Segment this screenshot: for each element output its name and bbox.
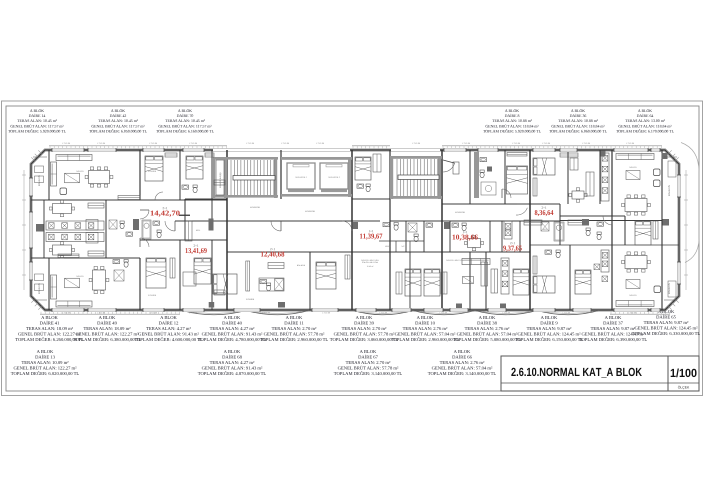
svg-text:TERAS ALAN: 9.87 m²: TERAS ALAN: 9.87 m² [527, 326, 572, 331]
svg-text:HOL: HOL [543, 228, 548, 231]
svg-text:A BLOK: A BLOK [479, 315, 496, 320]
svg-text:A BLOK: A BLOK [356, 315, 373, 320]
svg-text:TERAS ALAN: 10.09 m²: TERAS ALAN: 10.09 m² [21, 360, 69, 365]
svg-text:TERAS ALAN: 4.27 m²: TERAS ALAN: 4.27 m² [210, 326, 255, 331]
svg-text:TERAS ALAN: 18.09 m²: TERAS ALAN: 18.09 m² [83, 326, 131, 331]
svg-text:BALKON: BALKON [668, 185, 671, 196]
svg-text:1.73/2.08: 1.73/2.08 [542, 142, 550, 145]
svg-text:1.73/2.08: 1.73/2.08 [412, 142, 420, 145]
svg-text:YANGIN KAÇIŞ: YANGIN KAÇIŞ [219, 172, 222, 188]
svg-text:A BLOK: A BLOK [505, 109, 519, 113]
svg-text:GENEL BRÜT ALAN: 118.84 m²: GENEL BRÜT ALAN: 118.84 m² [618, 123, 672, 128]
svg-text:1.73/2.08: 1.73/2.08 [97, 142, 105, 145]
svg-text:KİLER: KİLER [385, 245, 391, 248]
svg-text:TERAS ALAN: 9.87 m²: TERAS ALAN: 9.87 m² [644, 320, 689, 325]
svg-text:TOPLAM DEĞER: 2.960.000,00 TL: TOPLAM DEĞER: 2.960.000,00 TL [260, 337, 329, 342]
svg-text:DAİRE 67: DAİRE 67 [358, 355, 378, 360]
svg-text:GENEL BRÜT ALAN: 117.57 m²: GENEL BRÜT ALAN: 117.57 m² [91, 123, 145, 128]
svg-text:DAİRE 70: DAİRE 70 [177, 113, 194, 118]
svg-text:1.73/2.08: 1.73/2.08 [62, 312, 70, 315]
svg-text:1.73/2.08: 1.73/2.08 [262, 312, 270, 315]
svg-text:GENEL BRÜT ALAN: 57.78 m²: GENEL BRÜT ALAN: 57.78 m² [338, 366, 399, 371]
svg-text:A BLOK: A BLOK [160, 315, 177, 320]
svg-text:ÖLÇEK: ÖLÇEK [678, 386, 690, 390]
svg-text:TOPLAM DEĞER: 3.140.000,00 TL: TOPLAM DEĞER: 3.140.000,00 TL [428, 371, 497, 376]
svg-text:TOPLAM DEĞER: 4.600.000,00 TL: TOPLAM DEĞER: 4.600.000,00 TL [134, 337, 203, 342]
svg-text:DAİRE 37: DAİRE 37 [603, 321, 623, 326]
svg-text:1.73/2.08: 1.73/2.08 [626, 142, 634, 145]
svg-text:Y.ODASI: Y.ODASI [148, 170, 157, 173]
svg-text:1.73/2.08: 1.73/2.08 [246, 142, 254, 145]
svg-text:TERAS ALAN: 2.70 m²: TERAS ALAN: 2.70 m² [346, 360, 391, 365]
svg-text:ASANSÖR 1: ASANSÖR 1 [295, 176, 307, 179]
svg-text:1.73/2.08: 1.73/2.08 [628, 312, 636, 315]
svg-text:TOPLAM DEĞER: 5.080.000,00 TL: TOPLAM DEĞER: 5.080.000,00 TL [453, 337, 522, 342]
svg-text:1.73/2.08: 1.73/2.08 [149, 142, 157, 145]
svg-text:A BLOK: A BLOK [37, 349, 54, 354]
svg-text:TERAS ALAN: 2.76 m²: TERAS ALAN: 2.76 m² [403, 326, 448, 331]
svg-text:DAİRE 64: DAİRE 64 [637, 113, 654, 118]
svg-text:TOPLAM DEĞER: 6.150.000,00 TL: TOPLAM DEĞER: 6.150.000,00 TL [515, 337, 584, 342]
svg-text:GENEL BRÜT ALAN: 122.27 m²: GENEL BRÜT ALAN: 122.27 m² [18, 332, 82, 337]
svg-text:Y.ODASI: Y.ODASI [148, 294, 157, 297]
svg-text:GENEL BRÜT ALAN: 124.45 m²: GENEL BRÜT ALAN: 124.45 m² [634, 326, 698, 331]
svg-text:DAİRE 40: DAİRE 40 [222, 321, 242, 326]
svg-text:BALKON: BALKON [297, 264, 306, 267]
svg-text:1.73/2.08: 1.73/2.08 [62, 142, 70, 145]
svg-text:GENEL BRÜT ALAN: 91.43 m²: GENEL BRÜT ALAN: 91.43 m² [202, 366, 263, 371]
svg-text:DAİRE 39: DAİRE 39 [354, 321, 374, 326]
svg-text:A BLOK: A BLOK [30, 109, 44, 113]
svg-text:TOPLAM DEĞER: 6.060.000,00 TL: TOPLAM DEĞER: 6.060.000,00 TL [549, 128, 608, 133]
svg-text:1.73/2.08: 1.73/2.08 [189, 142, 197, 145]
svg-text:HOL: HOL [196, 229, 201, 232]
svg-text:DAİRE 10: DAİRE 10 [415, 321, 435, 326]
svg-text:1.73/2.08: 1.73/2.08 [149, 312, 157, 315]
svg-text:1.73/2.08: 1.73/2.08 [439, 312, 447, 315]
svg-text:SALON: SALON [76, 275, 84, 278]
svg-text:TOPLAM DEĞER: 6.050.000,00 TL: TOPLAM DEĞER: 6.050.000,00 TL [89, 128, 148, 133]
svg-text:DAİRE 8: DAİRE 8 [505, 113, 520, 118]
svg-text:TOPLAM DEĞER: 5.920.000,00 TL: TOPLAM DEĞER: 5.920.000,00 TL [483, 128, 542, 133]
svg-text:A BLOK: A BLOK [360, 349, 377, 354]
svg-text:TOPLAM DEĞER: 4.870.000,00 TL: TOPLAM DEĞER: 4.870.000,00 TL [198, 371, 267, 376]
svg-text:TERAS ALAN: 10.45 m²: TERAS ALAN: 10.45 m² [17, 119, 58, 123]
svg-text:1.73/2.08: 1.73/2.08 [562, 312, 570, 315]
svg-text:A BLOK: A BLOK [224, 315, 241, 320]
svg-text:1.73/2.08: 1.73/2.08 [316, 142, 324, 145]
svg-text:TOPLAM DEĞER: 6.020.000,00 TL: TOPLAM DEĞER: 6.020.000,00 TL [11, 371, 80, 376]
svg-text:SALON: SALON [629, 166, 637, 169]
svg-text:TERAS ALAN: 2.70 m²: TERAS ALAN: 2.70 m² [272, 326, 317, 331]
svg-text:BALKON: BALKON [38, 175, 41, 186]
svg-text:DAİRE 49: DAİRE 49 [97, 321, 117, 326]
svg-text:DAİRE 66: DAİRE 66 [452, 355, 472, 360]
svg-text:TERAS ALAN: 9.87 m²: TERAS ALAN: 9.87 m² [591, 326, 636, 331]
svg-text:TERAS ALAN: 2.76 m²: TERAS ALAN: 2.76 m² [440, 360, 485, 365]
svg-text:TERAS ALAN: 10.88 m²: TERAS ALAN: 10.88 m² [492, 119, 533, 123]
svg-text:KORİDOR: KORİDOR [305, 210, 316, 213]
svg-text:DAİRE 36: DAİRE 36 [570, 113, 587, 118]
svg-text:SALON: SALON [76, 170, 84, 173]
svg-text:GENEL BRÜT ALAN: 118.84 m²: GENEL BRÜT ALAN: 118.84 m² [551, 123, 605, 128]
svg-text:SALON: SALON [629, 294, 637, 297]
svg-text:A BLOK: A BLOK [224, 349, 241, 354]
svg-text:BALKON: BALKON [668, 283, 671, 294]
svg-text:1.73/2.08: 1.73/2.08 [512, 142, 520, 145]
svg-text:1.73/2.08: 1.73/2.08 [502, 312, 510, 315]
svg-text:DAİRE 11: DAİRE 11 [284, 321, 304, 326]
svg-text:GENEL BRÜT ALAN: 57.04 m²: GENEL BRÜT ALAN: 57.04 m² [432, 366, 493, 371]
svg-text:1.73/2.08: 1.73/2.08 [462, 142, 470, 145]
svg-text:GENEL BRÜT ALAN: 91.43 m²: GENEL BRÜT ALAN: 91.43 m² [202, 332, 263, 337]
svg-text:SALON+MUTFAK: SALON+MUTFAK [446, 259, 464, 262]
svg-text:TOPLAM DEĞER: 3.140.000,00 TL: TOPLAM DEĞER: 3.140.000,00 TL [334, 371, 403, 376]
svg-text:KORİDOR: KORİDOR [250, 206, 261, 209]
svg-text:GENEL BRÜT ALAN: 122.27 m²: GENEL BRÜT ALAN: 122.27 m² [75, 332, 139, 337]
svg-text:TERAS ALAN: 18.09 m²: TERAS ALAN: 18.09 m² [26, 326, 74, 331]
svg-text:TOPLAM DEĞER: 6.390.000,00 TL: TOPLAM DEĞER: 6.390.000,00 TL [579, 337, 648, 342]
svg-text:1.73/2.08: 1.73/2.08 [189, 312, 197, 315]
svg-text:SALON+MUTFAK: SALON+MUTFAK [361, 259, 379, 262]
svg-text:Y.ODASI: Y.ODASI [246, 298, 255, 301]
svg-text:GENEL BRÜT ALAN: 57.78 m²: GENEL BRÜT ALAN: 57.78 m² [264, 332, 325, 337]
svg-text:15.49 m²: 15.49 m² [367, 265, 374, 268]
svg-text:GENEL BRÜT ALAN: 117.57 m²: GENEL BRÜT ALAN: 117.57 m² [158, 123, 212, 128]
svg-text:TOPLAM DEĞER: 5.920.000,00 TL: TOPLAM DEĞER: 5.920.000,00 TL [8, 128, 67, 133]
svg-text:DAİRE 9: DAİRE 9 [540, 321, 558, 326]
svg-text:ASANSÖR 2: ASANSÖR 2 [328, 176, 340, 179]
svg-text:1.73/2.08: 1.73/2.08 [582, 142, 590, 145]
svg-text:A BLOK: A BLOK [454, 349, 471, 354]
svg-text:TOPLAM DEĞER: 6.330.000,00 TL: TOPLAM DEĞER: 6.330.000,00 TL [632, 331, 701, 336]
svg-text:GENEL BRÜT ALAN: 118.84 m²: GENEL BRÜT ALAN: 118.84 m² [485, 123, 539, 128]
svg-text:A BLOK: A BLOK [638, 109, 652, 113]
svg-text:GENEL BRÜT ALAN: 57.04 m²: GENEL BRÜT ALAN: 57.04 m² [395, 332, 456, 337]
svg-text:TERAS ALAN: 4.27 m²: TERAS ALAN: 4.27 m² [146, 326, 191, 331]
svg-text:A BLOK: A BLOK [286, 315, 303, 320]
svg-text:DAİRE 38: DAİRE 38 [477, 321, 497, 326]
svg-text:TERAS ALAN: 2.70 m²: TERAS ALAN: 2.70 m² [342, 326, 387, 331]
svg-text:1.73/2.08: 1.73/2.08 [379, 312, 387, 315]
svg-text:BALKON: BALKON [38, 283, 41, 294]
svg-text:TOPLAM DEĞER: 6.170.000,00 TL: TOPLAM DEĞER: 6.170.000,00 TL [616, 128, 675, 133]
svg-text:A BLOK: A BLOK [541, 315, 558, 320]
svg-text:TOPLAM DEĞER: 4.780.000,00 TL: TOPLAM DEĞER: 4.780.000,00 TL [198, 337, 267, 342]
svg-text:DAİRE 42: DAİRE 42 [110, 113, 127, 118]
svg-text:GENEL BRÜT ALAN: 122.27 m²: GENEL BRÜT ALAN: 122.27 m² [13, 366, 77, 371]
svg-text:TERAS ALAN: 10.45 m²: TERAS ALAN: 10.45 m² [165, 119, 206, 123]
svg-text:TERAS ALAN: 10.45 m²: TERAS ALAN: 10.45 m² [98, 119, 139, 123]
svg-text:1.73/2.08: 1.73/2.08 [281, 142, 289, 145]
svg-text:TOPLAM DEĞER: 2.960.000,00 TL: TOPLAM DEĞER: 2.960.000,00 TL [391, 337, 460, 342]
svg-text:DAİRE 68: DAİRE 68 [222, 355, 242, 360]
svg-text:GENEL BRÜT ALAN: 117.57 m²: GENEL BRÜT ALAN: 117.57 m² [10, 123, 64, 128]
svg-text:A BLOK: A BLOK [178, 109, 192, 113]
svg-text:DAİRE 65: DAİRE 65 [656, 315, 676, 320]
svg-text:DAİRE 13: DAİRE 13 [35, 355, 55, 360]
svg-text:DAİRE 12: DAİRE 12 [159, 321, 179, 326]
svg-text:TOPLAM DEĞER: 6.380.000,00 TL: TOPLAM DEĞER: 6.380.000,00 TL [73, 337, 142, 342]
svg-text:KORİDOR: KORİDOR [455, 211, 466, 214]
svg-text:A BLOK: A BLOK [605, 315, 622, 320]
svg-text:A BLOK: A BLOK [99, 315, 116, 320]
svg-text:GENEL BRÜT ALAN: 57.04 m²: GENEL BRÜT ALAN: 57.04 m² [457, 332, 518, 337]
svg-text:GENEL BRÜT ALAN: 91.43 m²: GENEL BRÜT ALAN: 91.43 m² [138, 332, 199, 337]
svg-text:TOPLAM DEĞER: 6.160.000,00 TL: TOPLAM DEĞER: 6.160.000,00 TL [156, 128, 215, 133]
svg-text:GENEL BRÜT ALAN: 124.45 m²: GENEL BRÜT ALAN: 124.45 m² [517, 332, 581, 337]
svg-text:GENEL BRÜT ALAN: 57.78 m²: GENEL BRÜT ALAN: 57.78 m² [334, 332, 395, 337]
svg-text:TOPLAM DEĞER: 3.060.000,00 TL: TOPLAM DEĞER: 3.060.000,00 TL [330, 337, 399, 342]
svg-text:DAİRE 14: DAİRE 14 [29, 113, 46, 118]
svg-text:A BLOK: A BLOK [571, 109, 585, 113]
svg-text:TERAS ALAN: 10.88 m²: TERAS ALAN: 10.88 m² [558, 119, 599, 123]
svg-text:1.73/2.08: 1.73/2.08 [97, 312, 105, 315]
svg-text:TERAS ALAN: 2.76 m²: TERAS ALAN: 2.76 m² [465, 326, 510, 331]
svg-text:A BLOK: A BLOK [111, 109, 125, 113]
svg-text:A BLOK: A BLOK [41, 315, 58, 320]
svg-text:TERAS ALAN: 4.27 m²: TERAS ALAN: 4.27 m² [210, 360, 255, 365]
svg-text:TERAS ALAN: 13.00 m²: TERAS ALAN: 13.00 m² [625, 119, 666, 123]
svg-text:A BLOK: A BLOK [417, 315, 434, 320]
svg-text:DAİRE 41: DAİRE 41 [40, 321, 60, 326]
svg-text:1.73/2.08: 1.73/2.08 [322, 312, 330, 315]
